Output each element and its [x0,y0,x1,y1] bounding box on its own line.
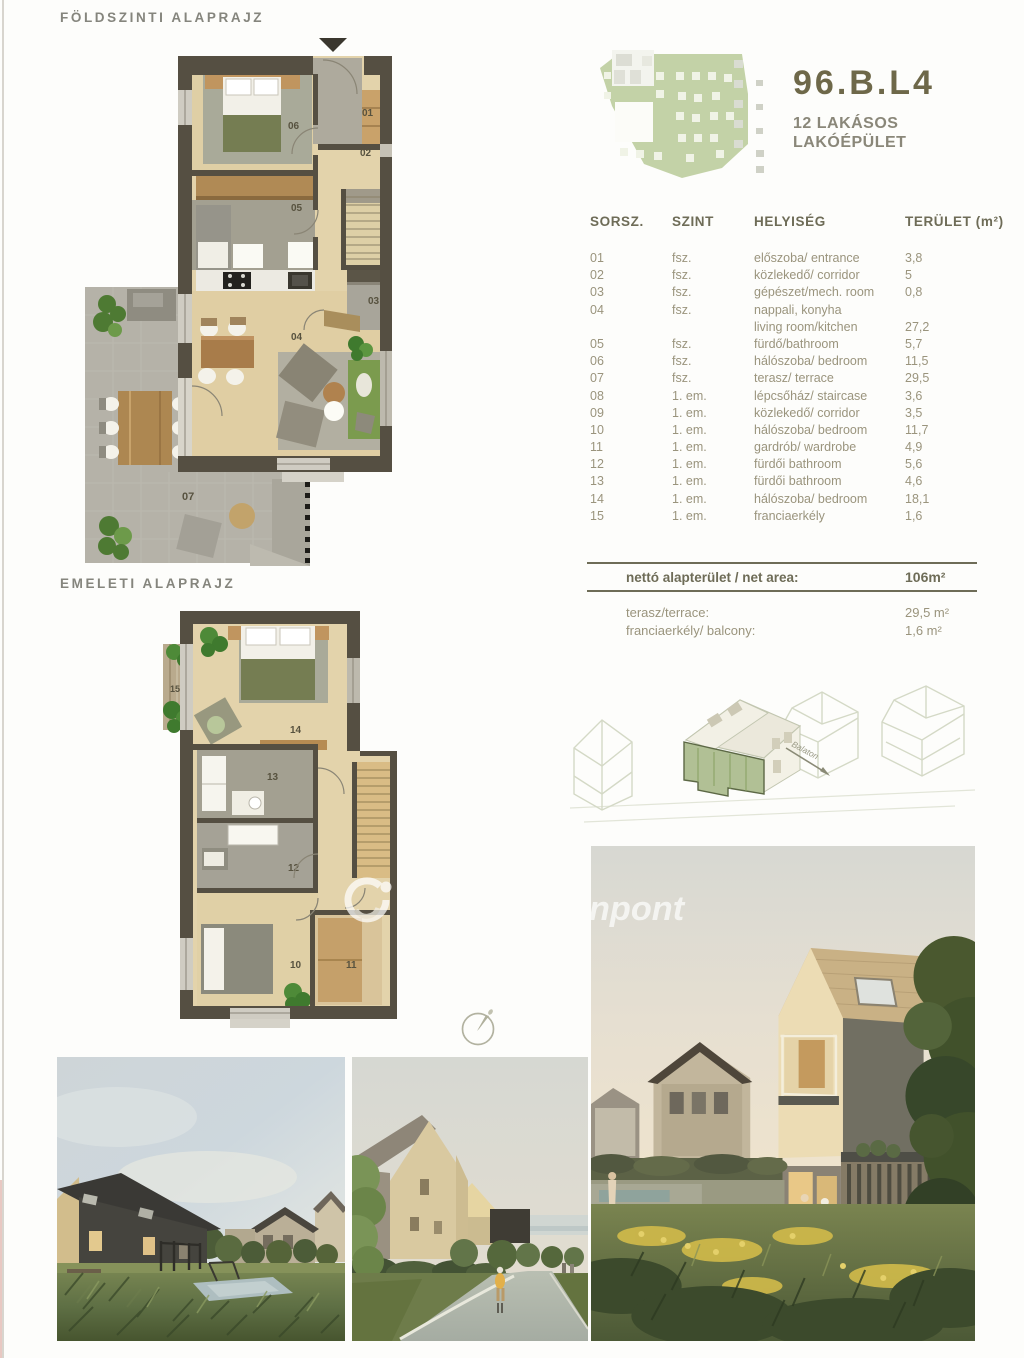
svg-text:10: 10 [290,960,302,971]
svg-text:13: 13 [267,772,279,783]
svg-text:11: 11 [346,960,357,971]
svg-text:14: 14 [290,725,302,736]
svg-text:05: 05 [291,203,303,214]
svg-text:npont: npont [591,890,686,928]
svg-text:01: 01 [362,108,374,119]
svg-text:06: 06 [288,121,300,132]
svg-text:15: 15 [170,684,180,694]
svg-text:07: 07 [182,491,194,503]
svg-text:04: 04 [291,332,303,343]
svg-text:03: 03 [368,296,380,307]
svg-text:02: 02 [360,148,372,159]
